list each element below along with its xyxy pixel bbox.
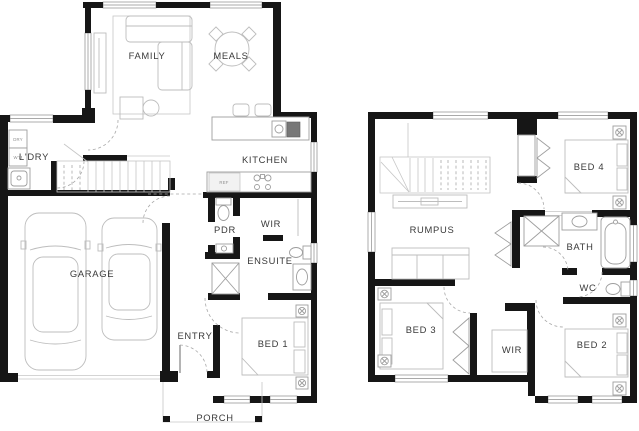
dishwasher (287, 122, 300, 137)
pillow (382, 309, 392, 335)
pillow (294, 322, 305, 347)
room-label-bed3: BED 3 (406, 324, 437, 335)
hall-door-swing (88, 120, 118, 150)
room-label-bath: BATH (566, 241, 593, 252)
pillow (294, 350, 305, 373)
ceiling-light-symbol (296, 377, 308, 389)
room-label-rumpus: RUMPUS (410, 224, 455, 235)
room-label-garage: GARAGE (70, 268, 114, 279)
shower (212, 263, 239, 294)
room-label-wir-upper: WIR (502, 344, 522, 355)
room-label-wir: WIR (261, 218, 281, 229)
room-label-ensuite: ENSUITE (247, 255, 293, 266)
ceiling-light-symbol (613, 126, 626, 139)
bathroom-fixtures-ground (212, 198, 311, 294)
robe-door (537, 158, 550, 178)
room-label-meals: MEALS (213, 50, 248, 61)
floor-plan-page: FAMILY MEALS KITCHEN L'DRY DRY W'M REF P… (0, 0, 639, 431)
ceiling-light-symbol (378, 288, 391, 300)
ceiling-light-symbol (613, 196, 626, 209)
car (21, 213, 90, 370)
room-label-porch: PORCH (196, 412, 233, 423)
room-label-entry: ENTRY (177, 330, 212, 341)
room-label-powder: PDR (214, 224, 236, 235)
room-label-laundry: L'DRY (19, 151, 49, 162)
first-floor-plan: RUMPUS BED 4 BATH WC BED 3 WIR BED 2 (368, 112, 637, 403)
linen-door (495, 244, 511, 266)
ground-floor-plan: FAMILY MEALS KITCHEN L'DRY DRY W'M REF P… (0, 2, 317, 423)
bathroom-fixtures-first (524, 213, 630, 296)
wardrobes-first (453, 135, 550, 374)
ensuite-hall-door-swing (205, 298, 240, 333)
appliance-label-washer: W'M (13, 155, 22, 160)
bed2-group (565, 314, 628, 395)
room-label-kitchen: KITCHEN (242, 154, 288, 165)
stool (233, 104, 249, 116)
appliance-label-dryer: DRY (13, 137, 23, 142)
tv-unit (94, 33, 106, 93)
garage-panel-door (18, 376, 160, 380)
family-furniture (94, 16, 256, 119)
pillow (617, 333, 627, 353)
robe-door (453, 318, 469, 346)
stool (255, 104, 271, 116)
bed2-door-swing (536, 300, 563, 327)
porch-post (163, 416, 170, 422)
bed4-robe (518, 135, 535, 176)
ceiling-light-symbol (613, 314, 626, 327)
appliance-label-fridge: REF (219, 180, 228, 185)
pillow (617, 144, 627, 166)
robe-door (453, 346, 469, 374)
room-label-wc: WC (579, 282, 596, 293)
porch-post (255, 416, 262, 422)
garage-cars (21, 213, 161, 370)
ceiling-light-symbol (296, 305, 308, 317)
toilet (606, 282, 630, 296)
ceiling-light-symbol (378, 355, 391, 367)
coffee-table (120, 97, 143, 119)
pillow (617, 355, 627, 375)
front-door-swing (180, 345, 207, 372)
floor-plan-drawing: FAMILY MEALS KITCHEN L'DRY DRY W'M REF P… (0, 0, 639, 431)
car (98, 218, 161, 340)
sofa (126, 16, 192, 42)
stairs-ground (57, 144, 170, 192)
sofa (392, 248, 469, 279)
pillow (617, 168, 627, 190)
room-label-bed4: BED 4 (574, 161, 605, 172)
shower (524, 216, 559, 246)
stairs-first (380, 123, 490, 193)
bed4-door-swing (518, 183, 544, 209)
bed3-door-swing (444, 287, 470, 313)
toilet (216, 198, 231, 221)
room-label-family: FAMILY (129, 50, 166, 61)
linen-door (495, 222, 511, 244)
room-label-bed1: BED 1 (258, 338, 289, 349)
ceiling-light-symbol (613, 382, 626, 395)
garage-door-swing (143, 196, 170, 223)
room-label-bed2: BED 2 (577, 339, 608, 350)
robe-door (537, 138, 550, 158)
rumpus-furniture (392, 195, 469, 279)
bathtub (601, 217, 630, 268)
rug (113, 16, 190, 114)
